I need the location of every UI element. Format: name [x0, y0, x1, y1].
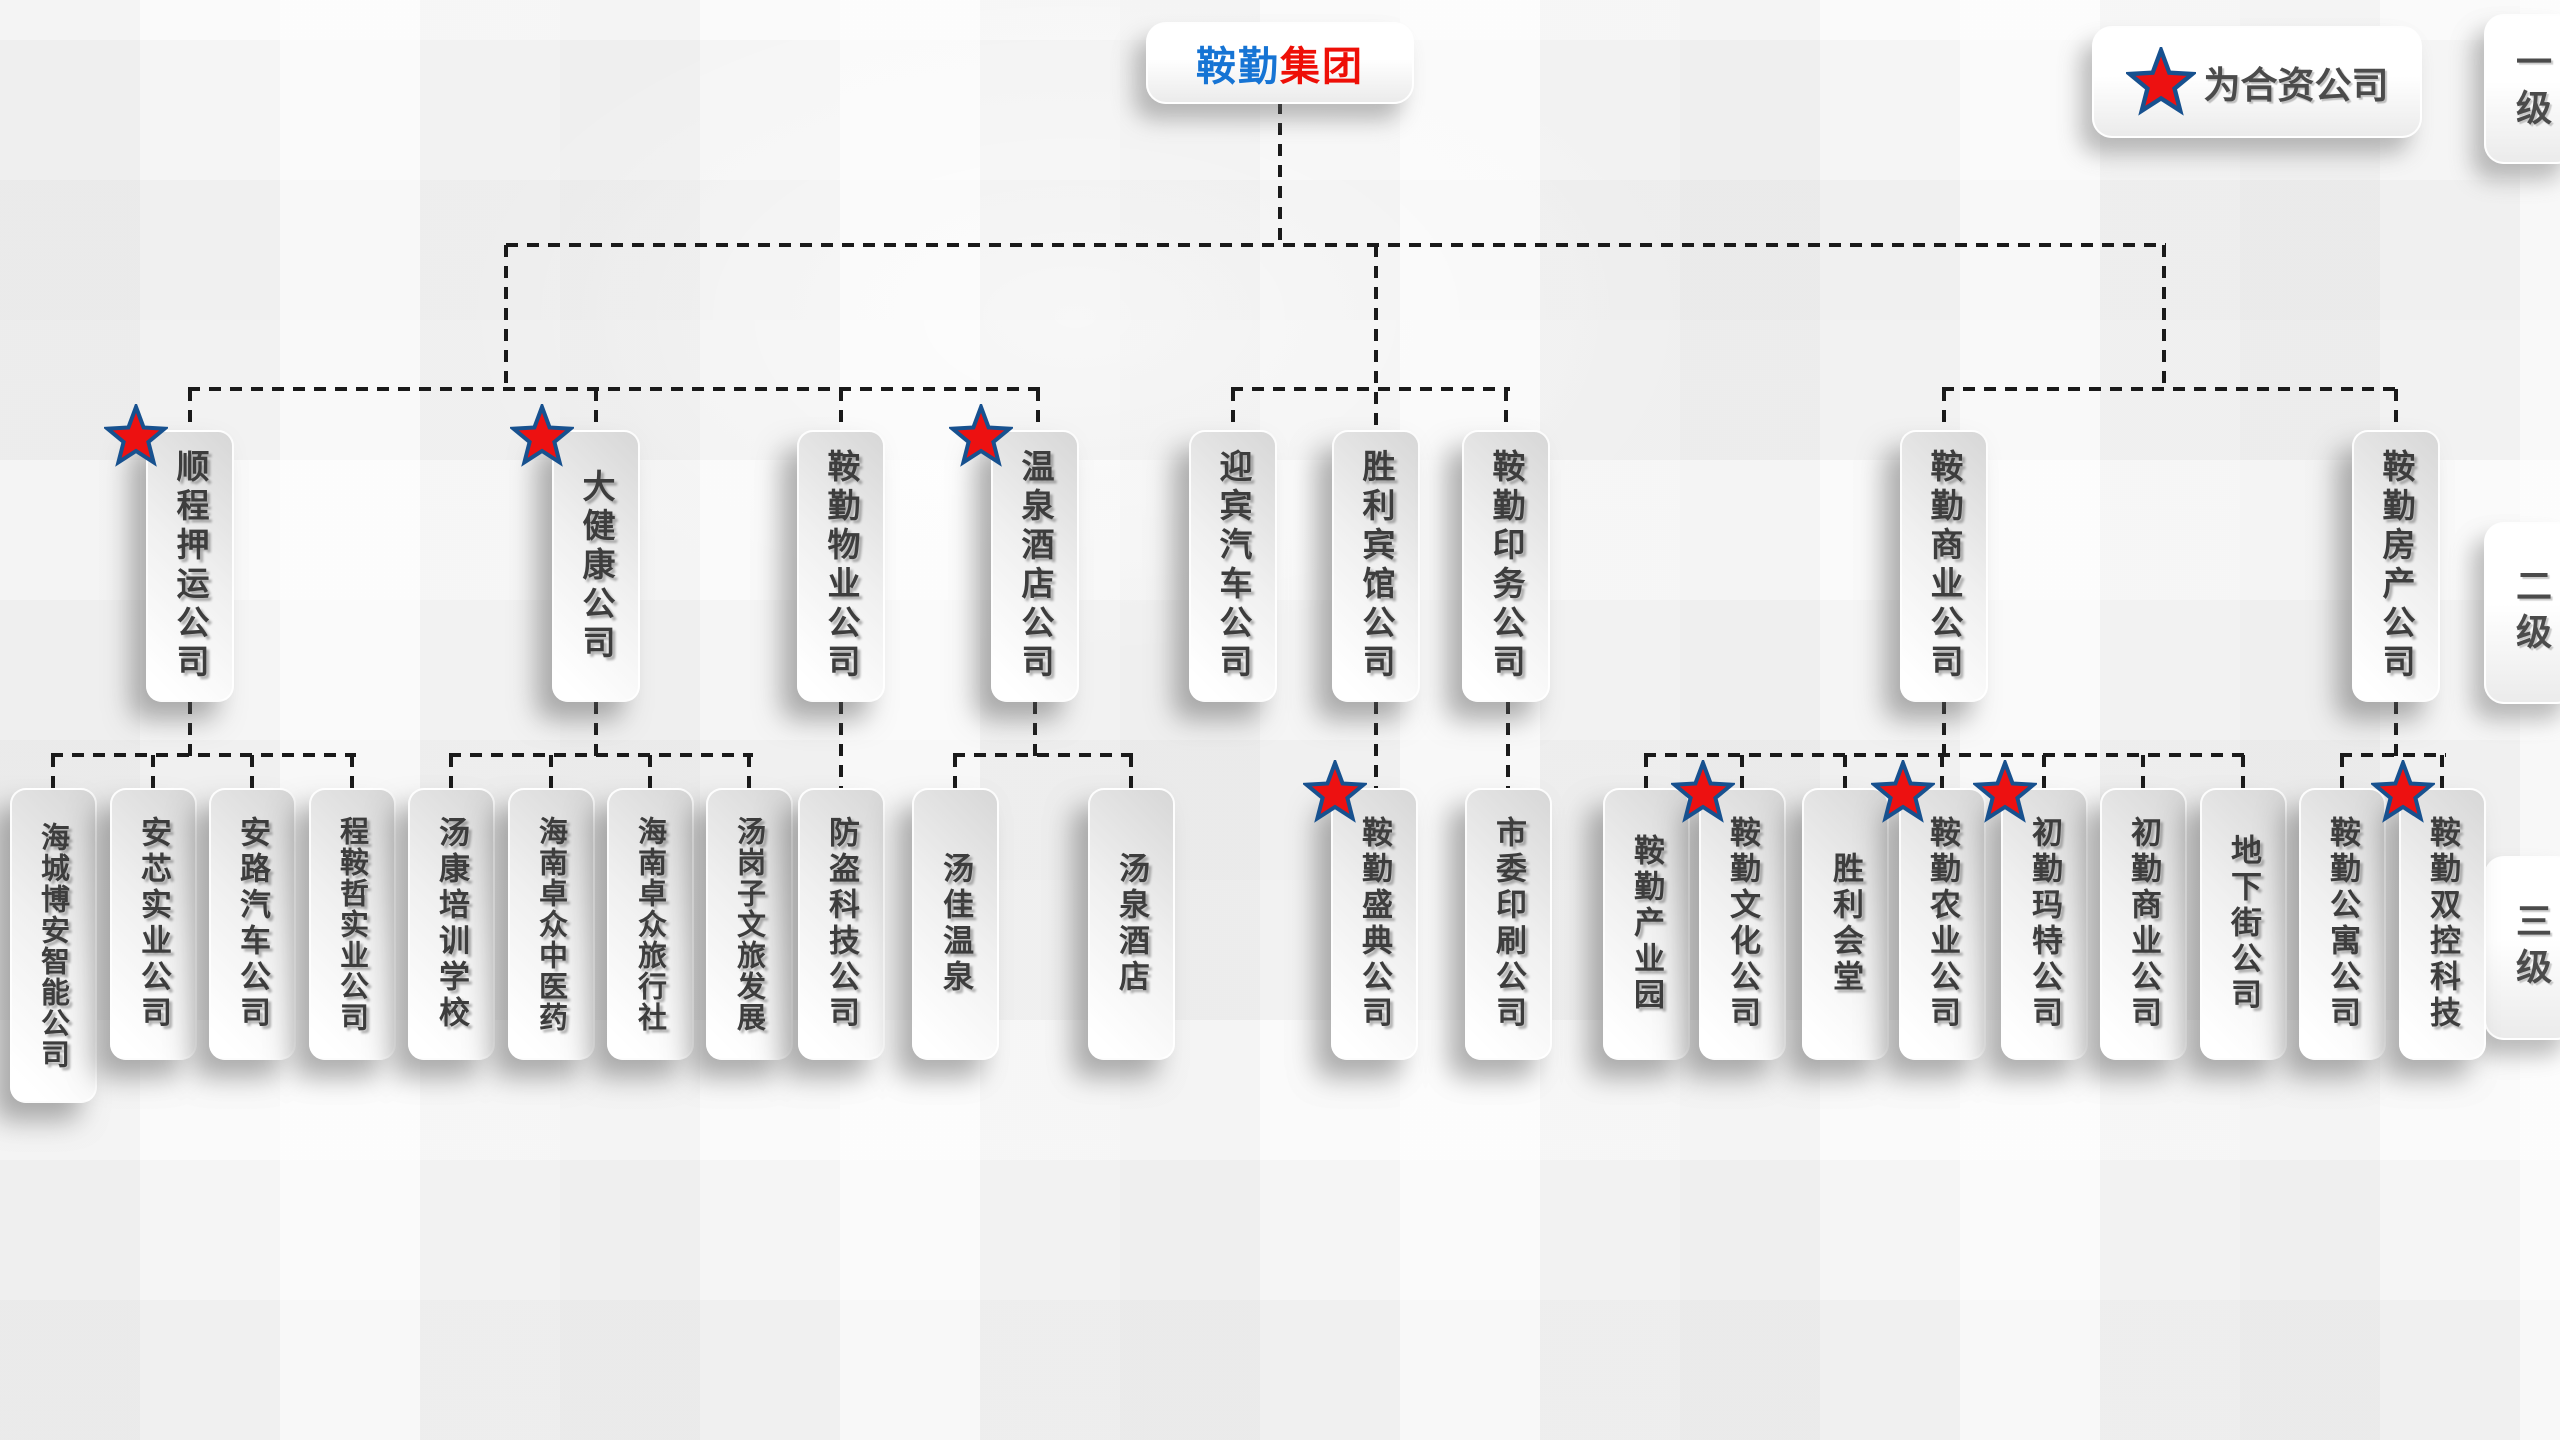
org-node: 鞍勤农业公司: [1899, 788, 1986, 1060]
connector-line: [506, 243, 2166, 247]
org-node: 地下街公司: [2200, 788, 2287, 1060]
org-node: 初勤商业公司: [2100, 788, 2187, 1060]
joint-venture-star-icon: [510, 404, 574, 468]
level-1-label: 一级: [2484, 14, 2560, 164]
connector-line: [549, 755, 553, 788]
connector-line: [953, 755, 957, 788]
connector-line: [188, 389, 192, 432]
org-node-label: 温泉酒店公司: [1011, 449, 1059, 683]
org-node-label: 鞍勤商业公司: [1920, 449, 1968, 683]
connector-line: [504, 245, 508, 391]
org-node-label: 鞍勤物业公司: [817, 449, 865, 683]
org-node-label: 鞍勤房产公司: [2372, 449, 2420, 683]
org-node: 鞍勤印务公司: [1462, 430, 1550, 702]
legend-label: 为合资公司: [2204, 55, 2389, 109]
connector-line: [1129, 755, 1133, 788]
org-node-label: 鞍勤双控科技: [2420, 816, 2465, 1032]
org-node-label: 地下街公司: [2221, 834, 2266, 1014]
connector-line: [1940, 755, 1944, 788]
connector-line: [953, 753, 1135, 757]
connector-line: [1644, 755, 1648, 788]
connector-line: [51, 755, 55, 788]
org-node-label: 海南卓众旅行社: [630, 816, 672, 1033]
connector-line: [188, 387, 1042, 391]
org-node-label: 鞍勤文化公司: [1720, 816, 1765, 1032]
org-node-label: 安路汽车公司: [230, 816, 275, 1032]
connector-line: [1231, 387, 1510, 391]
org-node: 市委印刷公司: [1465, 788, 1552, 1060]
org-node-label: 胜利会堂: [1823, 852, 1868, 996]
org-node: 汤康培训学校: [408, 788, 495, 1060]
legend: 为合资公司: [2092, 26, 2422, 138]
connector-line: [1942, 389, 1946, 432]
connector-line: [2440, 755, 2444, 788]
org-node-label: 海城博安智能公司: [33, 822, 75, 1070]
root-title-red: 集团: [1280, 34, 1364, 92]
connector-line: [2042, 755, 2046, 788]
connector-line: [2394, 702, 2398, 757]
connector-line: [1033, 702, 1037, 757]
org-node: 初勤玛特公司: [2001, 788, 2088, 1060]
org-node-label: 鞍勤印务公司: [1482, 449, 1530, 683]
org-node-label: 初勤商业公司: [2121, 816, 2166, 1032]
connector-line: [839, 702, 843, 788]
connector-line: [1278, 102, 1282, 245]
connector-line: [648, 755, 652, 788]
connector-line: [2241, 755, 2245, 788]
connector-line: [2394, 389, 2398, 432]
org-node-label: 鞍勤农业公司: [1920, 816, 1965, 1032]
org-node-label: 大健康公司: [572, 469, 620, 664]
org-node: 安路汽车公司: [209, 788, 296, 1060]
joint-venture-star-icon: [104, 404, 168, 468]
connector-line: [594, 702, 598, 757]
connector-line: [594, 389, 598, 432]
connector-line: [188, 702, 192, 757]
org-node: 海城博安智能公司: [10, 788, 97, 1103]
connector-line: [1942, 387, 2400, 391]
org-node-label: 汤泉酒店: [1109, 852, 1154, 996]
org-node: 鞍勤双控科技: [2399, 788, 2486, 1060]
org-node: 胜利会堂: [1802, 788, 1889, 1060]
connector-line: [1942, 702, 1946, 757]
connector-line: [1740, 755, 1744, 788]
org-node: 鞍勤文化公司: [1699, 788, 1786, 1060]
org-node: 鞍勤公寓公司: [2299, 788, 2386, 1060]
connector-line: [2162, 245, 2166, 391]
connector-line: [839, 389, 843, 432]
org-node-label: 鞍勤盛典公司: [1352, 816, 1397, 1032]
connector-line: [1374, 702, 1378, 788]
connector-line: [1231, 389, 1235, 432]
org-node-label: 程鞍哲实业公司: [332, 816, 374, 1033]
org-node: 海南卓众中医药: [508, 788, 595, 1060]
connector-line: [1843, 755, 1847, 788]
org-node-label: 汤康培训学校: [429, 816, 474, 1032]
level-3-label: 三级: [2484, 856, 2560, 1040]
root-node: 鞍勤集团: [1146, 22, 1414, 104]
connector-line: [151, 755, 155, 788]
org-node-label: 初勤玛特公司: [2022, 816, 2067, 1032]
org-node-label: 迎宾汽车公司: [1209, 449, 1257, 683]
org-node: 温泉酒店公司: [991, 430, 1079, 702]
level-1-text: 一级: [2504, 43, 2556, 135]
connector-line: [1644, 753, 2247, 757]
joint-venture-star-icon: [949, 404, 1013, 468]
org-node: 鞍勤产业园: [1603, 788, 1690, 1060]
org-node: 鞍勤房产公司: [2352, 430, 2440, 702]
org-node: 鞍勤物业公司: [797, 430, 885, 702]
level-2-text: 二级: [2504, 567, 2556, 659]
connector-line: [51, 753, 356, 757]
connector-line: [2141, 755, 2145, 788]
org-node: 安芯实业公司: [110, 788, 197, 1060]
org-node-label: 顺程押运公司: [166, 449, 214, 683]
org-node-label: 鞍勤产业园: [1624, 834, 1669, 1014]
connector-line: [1374, 245, 1378, 432]
connector-line: [747, 755, 751, 788]
connector-line: [2340, 753, 2446, 757]
joint-venture-star-icon: [2126, 102, 2196, 121]
org-node-label: 胜利宾馆公司: [1352, 449, 1400, 683]
org-node: 胜利宾馆公司: [1332, 430, 1420, 702]
connector-line: [1506, 702, 1510, 788]
org-node-label: 海南卓众中医药: [531, 816, 573, 1033]
org-node: 鞍勤商业公司: [1900, 430, 1988, 702]
org-node-label: 市委印刷公司: [1486, 816, 1531, 1032]
org-node: 防盗科技公司: [798, 788, 885, 1060]
org-node: 迎宾汽车公司: [1189, 430, 1277, 702]
connector-line: [449, 753, 753, 757]
connector-line: [449, 755, 453, 788]
connector-line: [350, 755, 354, 788]
org-node: 汤佳温泉: [912, 788, 999, 1060]
connector-line: [1036, 389, 1040, 432]
joint-venture-star-icon: [1303, 760, 1367, 824]
org-node: 海南卓众旅行社: [607, 788, 694, 1060]
org-node-label: 汤岗子文旅发展: [729, 816, 771, 1033]
org-chart: 鞍勤集团 为合资公司 一级 二级 三级 顺程押运公司 大健康公司 鞍勤物业公司 …: [0, 0, 2560, 1440]
org-node: 汤泉酒店: [1088, 788, 1175, 1060]
level-3-text: 三级: [2504, 902, 2556, 994]
connector-line: [2340, 755, 2344, 788]
org-node-label: 鞍勤公寓公司: [2320, 816, 2365, 1032]
org-node-label: 防盗科技公司: [819, 816, 864, 1032]
connector-line: [1504, 389, 1508, 432]
org-node-label: 汤佳温泉: [933, 852, 978, 996]
org-node: 鞍勤盛典公司: [1331, 788, 1418, 1060]
level-2-label: 二级: [2484, 522, 2560, 704]
org-node-label: 安芯实业公司: [131, 816, 176, 1032]
org-node: 程鞍哲实业公司: [309, 788, 396, 1060]
root-title-blue: 鞍勤: [1196, 34, 1280, 92]
org-node: 大健康公司: [552, 430, 640, 702]
org-node: 顺程押运公司: [146, 430, 234, 702]
org-node: 汤岗子文旅发展: [706, 788, 793, 1060]
connector-line: [250, 755, 254, 788]
